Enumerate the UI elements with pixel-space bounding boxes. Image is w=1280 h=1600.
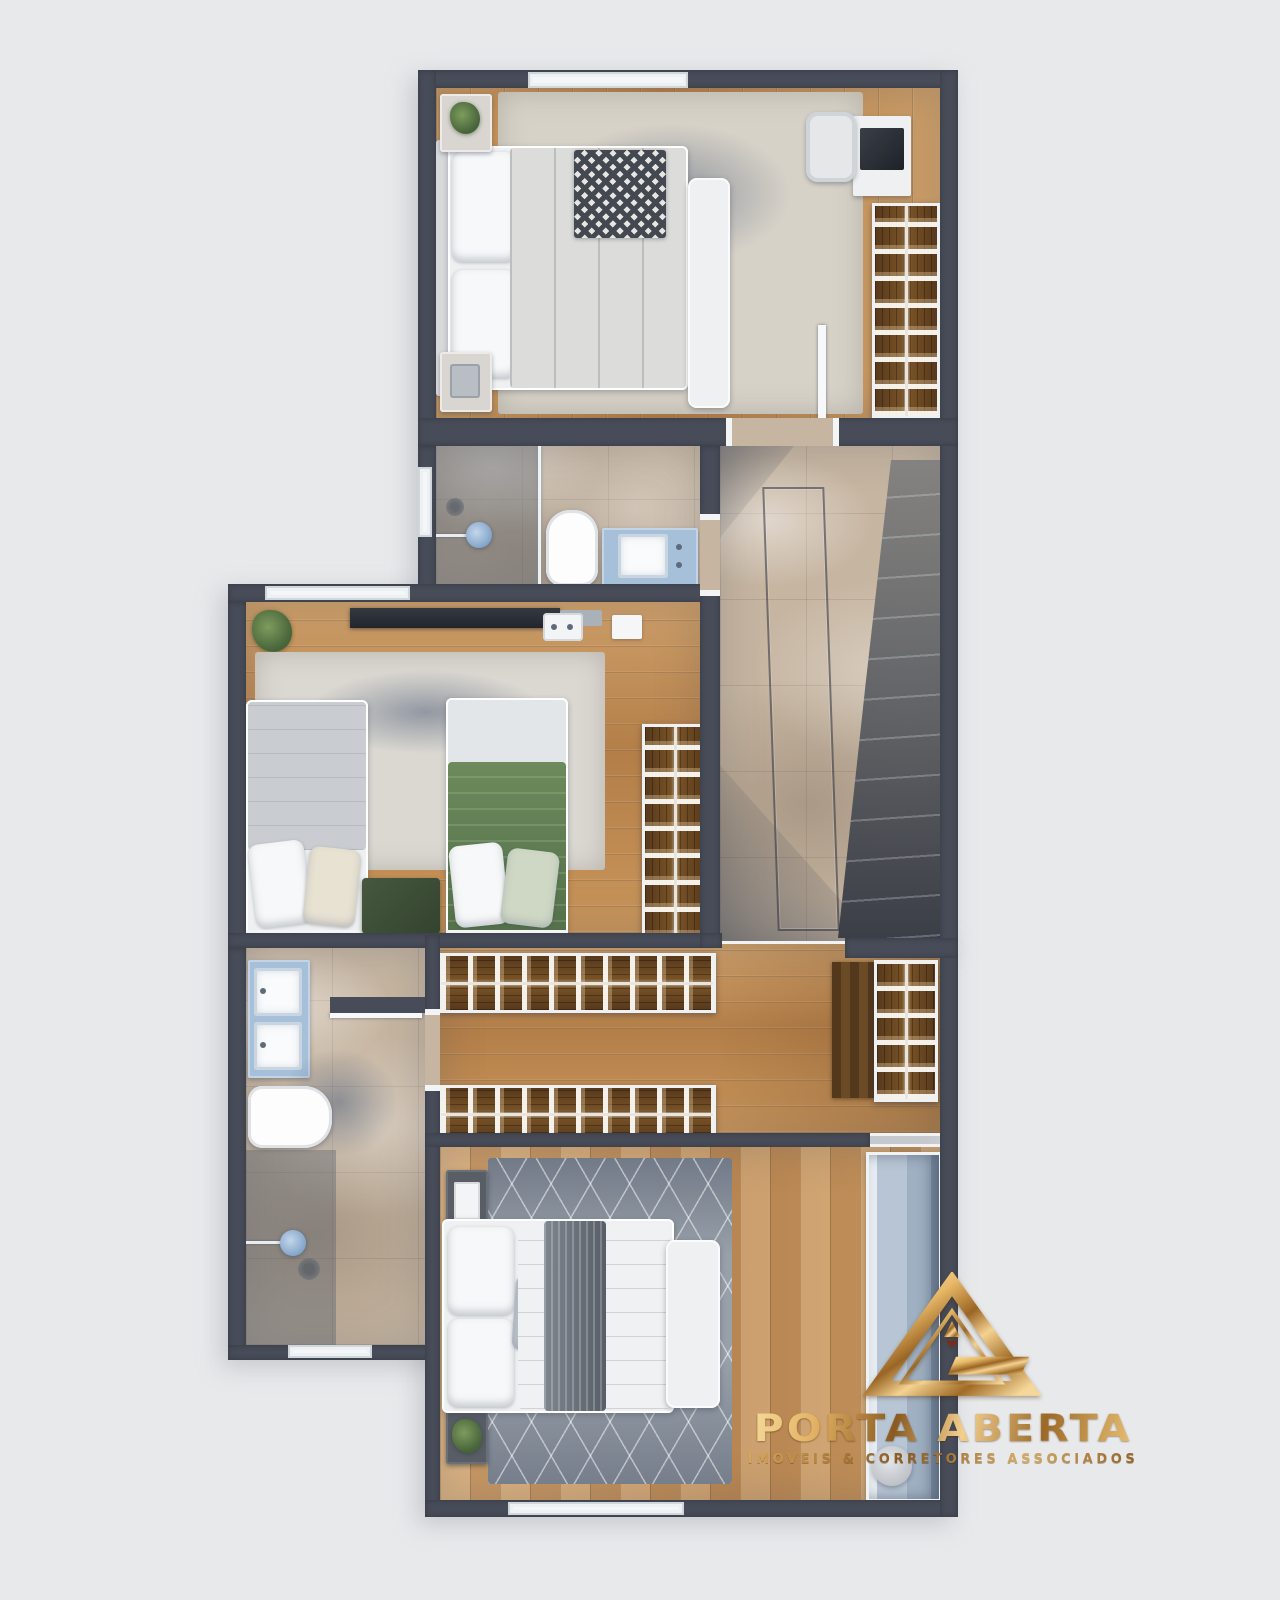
window — [265, 586, 410, 600]
door-jamb — [700, 514, 720, 520]
faucet-icon — [260, 1042, 266, 1048]
closet-rack-small — [874, 960, 938, 1102]
window — [288, 1345, 372, 1358]
door-opening — [425, 1015, 440, 1085]
faucet-icon — [676, 544, 682, 550]
door-jamb — [833, 418, 839, 446]
window — [418, 467, 432, 537]
laptop-icon — [860, 128, 904, 170]
floorplan-render: PORTA ABERTA IMOVEIS & CORRETORES ASSOCI… — [0, 0, 1280, 1600]
shower-head-icon — [466, 522, 492, 548]
wall — [418, 418, 730, 446]
shower-drain-icon — [446, 498, 464, 516]
faucet-icon — [676, 562, 682, 568]
closet-rack-bedroom-top — [872, 203, 940, 419]
wall — [425, 1133, 870, 1147]
wall — [845, 938, 958, 958]
plant-icon — [252, 610, 292, 652]
wall — [228, 602, 246, 948]
shower-glass-mid — [538, 446, 541, 586]
dark-wood-panel — [832, 962, 874, 1098]
control-dot — [567, 624, 573, 630]
control-dot — [551, 624, 557, 630]
room-bedroom-twin-floor — [246, 602, 700, 933]
gold-triangle-logo — [863, 1272, 1041, 1398]
tray-decor — [450, 364, 480, 398]
wall — [700, 446, 720, 520]
wall-control-panel — [543, 613, 583, 641]
pillow — [448, 1227, 514, 1315]
wall — [228, 933, 714, 948]
door-jamb — [425, 1085, 440, 1091]
bed-bench-bottom — [666, 1240, 720, 1408]
desk-chair — [806, 112, 856, 182]
throw-chevron — [574, 150, 666, 238]
closet-rack-upper — [438, 953, 716, 1013]
bed-runner — [544, 1221, 606, 1411]
wall — [228, 948, 246, 1360]
wall — [835, 418, 958, 446]
brand-watermark-logo — [863, 1272, 1041, 1398]
wall — [425, 1500, 958, 1517]
toilet-lower — [248, 1086, 332, 1148]
door-jamb — [425, 1009, 440, 1015]
brand-name: PORTA ABERTA — [745, 1406, 1141, 1450]
partition-wall — [330, 997, 425, 1013]
plant-icon — [450, 102, 480, 134]
pillow — [448, 1319, 514, 1407]
shower-head-icon — [280, 1230, 306, 1256]
shower-drain-icon — [298, 1258, 320, 1280]
walkin-closet-floor — [440, 944, 940, 1133]
shower-zone-mid — [436, 446, 540, 586]
room-bathroom-mid-floor — [436, 446, 700, 586]
ottoman-green — [362, 878, 440, 934]
sink — [618, 534, 668, 578]
wall — [418, 70, 958, 88]
shower-arm — [246, 1241, 284, 1244]
pillow — [302, 845, 362, 928]
staircase — [838, 460, 940, 938]
dresser-small — [612, 615, 642, 639]
door-jamb — [700, 590, 720, 596]
window — [508, 1502, 684, 1515]
door-opening — [730, 418, 835, 446]
blanket-twin-left — [248, 702, 366, 850]
pillow — [500, 847, 561, 929]
plant-icon — [452, 1419, 482, 1453]
hallway-floor — [720, 446, 940, 944]
shower-arm — [436, 534, 470, 537]
wall — [700, 590, 720, 948]
wall — [418, 70, 436, 432]
toilet-mid — [546, 510, 598, 586]
wall — [700, 933, 722, 948]
closet-rack-bedroom-twin — [642, 724, 708, 942]
pillow — [452, 152, 516, 262]
room-bathroom-lower-floor — [246, 948, 425, 1345]
door-opening — [700, 520, 720, 590]
tv-icon — [350, 608, 560, 628]
brand-tagline: IMOVEIS & CORRETORES ASSOCIADOS — [745, 1452, 1141, 1467]
door-jamb — [726, 418, 732, 446]
faucet-icon — [260, 988, 266, 994]
door-leaf-bedroom-top — [818, 325, 826, 418]
sheet-twin-right — [448, 700, 566, 764]
door-leaf-bathroom — [330, 1013, 422, 1018]
wall — [940, 70, 958, 948]
decor-card — [454, 1182, 480, 1220]
window — [528, 72, 688, 88]
room-bedroom-top-floor — [436, 88, 940, 418]
bed-bench-top — [688, 178, 730, 408]
